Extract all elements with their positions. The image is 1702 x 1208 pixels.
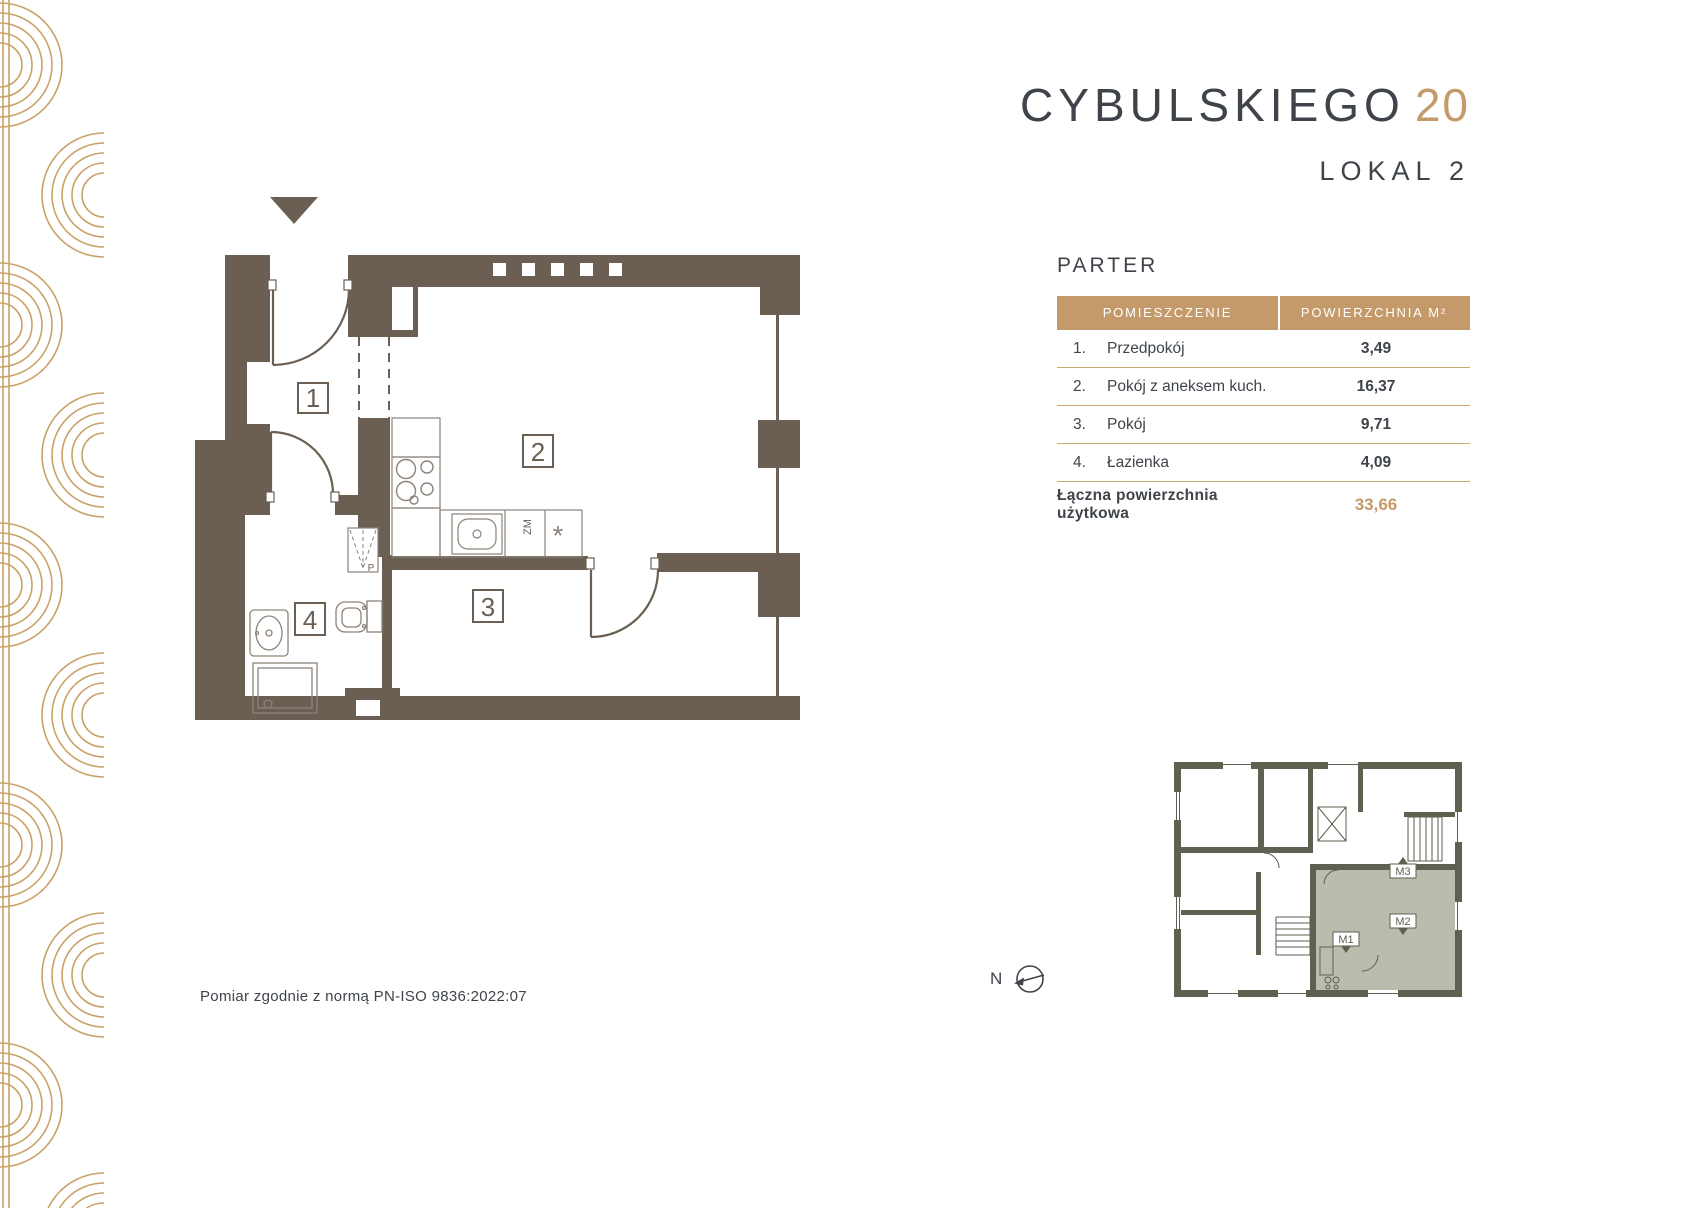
brand-name: CYBULSKIEGO xyxy=(1020,79,1405,131)
row-room-name: Pokój z aneksem kuch. xyxy=(1107,378,1282,396)
room-label-2: 2 xyxy=(531,437,545,467)
wall-openings xyxy=(247,263,622,716)
row-area-value: 16,37 xyxy=(1282,378,1470,396)
brand-logo: CYBULSKIEGO20 xyxy=(1020,78,1470,132)
walls xyxy=(195,255,800,720)
brand-number: 20 xyxy=(1415,79,1470,131)
toilet-icon xyxy=(336,601,382,632)
row-area-value: 3,49 xyxy=(1282,340,1470,358)
table-row: 3.Pokój9,71 xyxy=(1057,406,1470,444)
room-label-4: 4 xyxy=(303,605,317,635)
mini-label-m1: M1 xyxy=(1338,934,1353,946)
total-label: Łączna powierzchnia użytkowa xyxy=(1057,487,1282,523)
table-row: 2.Pokój z aneksem kuch.16,37 xyxy=(1057,368,1470,406)
entrance-arrow-icon xyxy=(270,197,318,224)
table-total-row: Łączna powierzchnia użytkowa 33,66 xyxy=(1057,482,1470,528)
table-row: 1.Przedpokój3,49 xyxy=(1057,330,1470,368)
room-labels: 1 2 3 4 xyxy=(295,383,553,635)
doors xyxy=(271,287,658,637)
unit-label: LOKAL 2 xyxy=(1319,156,1470,187)
table-header-row: POMIESZCZENIE POWIERZCHNIA M² xyxy=(1057,296,1470,330)
row-area-value: 9,71 xyxy=(1282,416,1470,434)
row-room-name: Pokój xyxy=(1107,416,1282,434)
shaft-symbol: P xyxy=(348,528,378,574)
row-number: 4. xyxy=(1057,454,1107,472)
table-body: 1.Przedpokój3,492.Pokój z aneksem kuch.1… xyxy=(1057,330,1470,482)
table-header-area: POWIERZCHNIA M² xyxy=(1280,296,1468,330)
mini-label-m2: M2 xyxy=(1395,916,1410,928)
door-hinges xyxy=(266,280,659,569)
mini-label-m3: M3 xyxy=(1395,866,1410,878)
floor-label: PARTER xyxy=(1057,254,1158,278)
floor-plan: ZM * P 1 2 3 4 xyxy=(185,190,805,728)
table-header-room: POMIESZCZENIE xyxy=(1057,296,1280,330)
row-number: 2. xyxy=(1057,378,1107,396)
room-label-3: 3 xyxy=(481,592,495,622)
total-value: 33,66 xyxy=(1282,495,1470,515)
building-overview-plan: M3 M2 M1 xyxy=(1168,752,1468,1004)
row-room-name: Przedpokój xyxy=(1107,340,1282,358)
measurement-note: Pomiar zgodnie z normą PN-ISO 9836:2022:… xyxy=(200,988,527,1005)
room-label-1: 1 xyxy=(306,383,320,413)
north-indicator: N xyxy=(990,958,1050,1000)
hob-icon xyxy=(397,460,434,505)
row-number: 3. xyxy=(1057,416,1107,434)
bathroom-sink-icon xyxy=(250,610,288,656)
row-number: 1. xyxy=(1057,340,1107,358)
dishwasher-label: ZM xyxy=(522,519,534,535)
area-table: POMIESZCZENIE POWIERZCHNIA M² 1.Przedpok… xyxy=(1057,296,1470,528)
table-row: 4.Łazienka4,09 xyxy=(1057,444,1470,482)
deco-border-pattern xyxy=(0,0,104,1208)
dashed-opening xyxy=(359,337,389,418)
svg-text:P: P xyxy=(368,563,375,574)
kitchen-sink-icon xyxy=(452,514,502,554)
fridge-symbol: * xyxy=(553,520,564,551)
highlighted-unit xyxy=(1316,870,1458,992)
north-label: N xyxy=(990,969,1002,989)
row-area-value: 4,09 xyxy=(1282,454,1470,472)
compass-icon xyxy=(1006,958,1050,1000)
row-room-name: Łazienka xyxy=(1107,454,1282,472)
